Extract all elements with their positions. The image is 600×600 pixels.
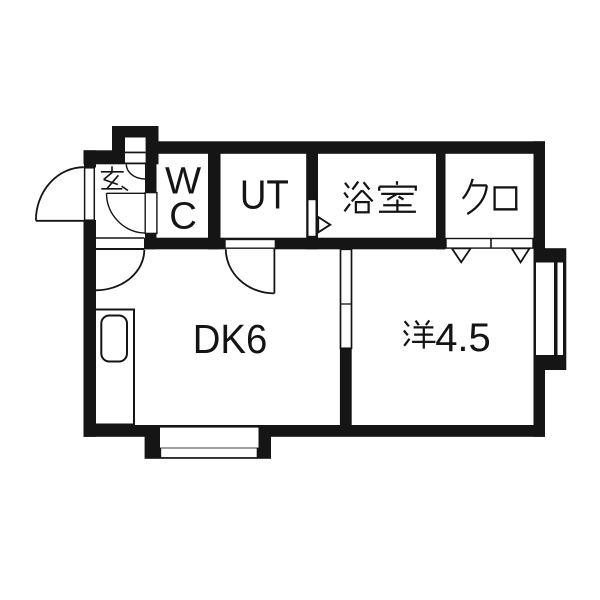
svg-text:C: C bbox=[169, 194, 197, 237]
svg-text:4.5: 4.5 bbox=[435, 316, 491, 360]
svg-text:UT: UT bbox=[240, 172, 289, 218]
svg-text:DK6: DK6 bbox=[193, 316, 268, 362]
